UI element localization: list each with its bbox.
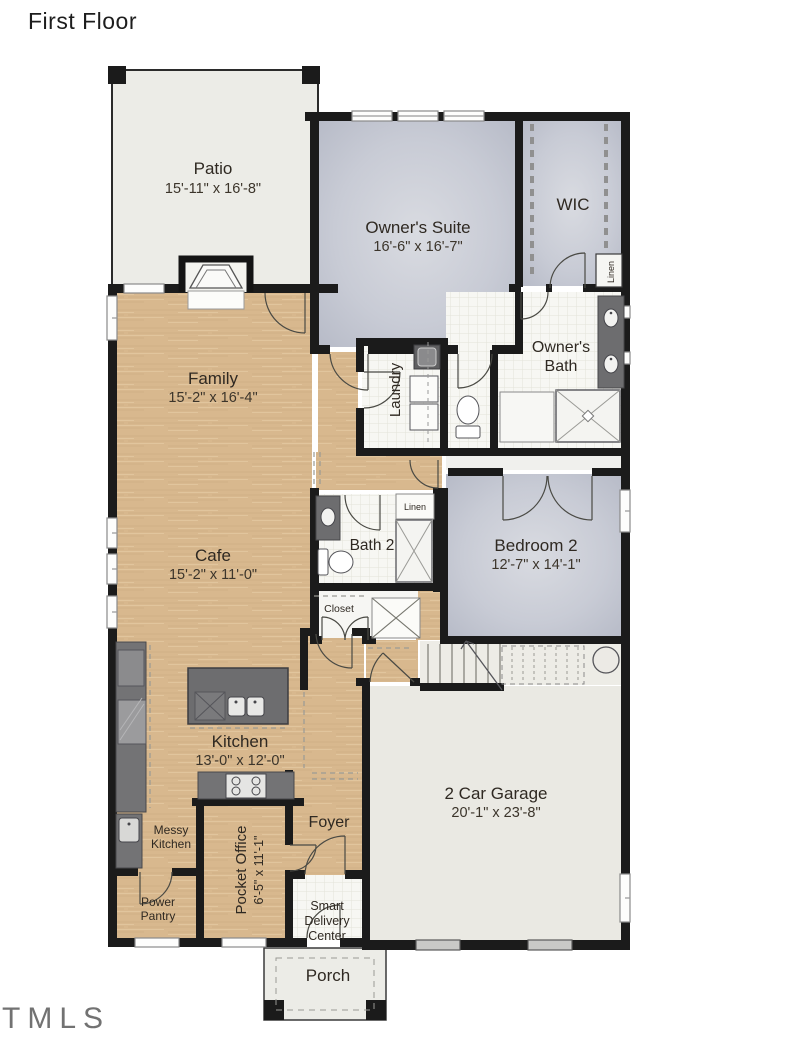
fireplace-icon <box>182 259 250 309</box>
wall-oven-icon <box>118 650 144 686</box>
pocket-office-label: Pocket Office <box>233 826 250 915</box>
wic-label: WIC <box>556 195 589 214</box>
bifold-doors <box>372 598 420 638</box>
window <box>222 938 266 947</box>
power-pantry-label-2: Pantry <box>141 909 176 923</box>
kitchen-dims: 13'-0" x 12'-0" <box>195 753 284 769</box>
linen-wic-label: Linen <box>606 261 616 283</box>
sink-icon <box>247 697 264 716</box>
power-pantry-label-1: Power <box>141 895 175 909</box>
kitchen-label: Kitchen <box>212 732 269 751</box>
garage-door <box>528 940 572 950</box>
cafe-label: Cafe <box>195 546 231 565</box>
toilet-icon <box>318 549 328 575</box>
window <box>135 938 179 947</box>
linen-bath2-label: Linen <box>404 502 426 512</box>
stove-icon <box>226 774 266 798</box>
sink-icon <box>228 697 245 716</box>
pocket-office-dims: 6'-5" x 11'-1" <box>252 835 266 904</box>
closet-label: Closet <box>324 603 354 615</box>
bedroom2-dims: 12'-7" x 14'-1" <box>491 557 580 573</box>
family-dims: 15'-2" x 16'-4" <box>168 390 257 406</box>
porch-label: Porch <box>306 966 350 985</box>
tmls-watermark: TMLS <box>2 1002 110 1035</box>
water-heater-icon <box>593 647 619 673</box>
laundry-appliances <box>410 342 440 446</box>
kitchen-island <box>188 668 288 724</box>
owners-suite-label: Owner's Suite <box>365 218 470 237</box>
shower-icon <box>500 390 620 442</box>
family-label: Family <box>188 369 239 388</box>
owners-bath-vanity <box>598 296 624 388</box>
bedroom2-floor <box>446 474 623 638</box>
floor-plan-page: First Floor <box>0 0 800 1064</box>
bath2-label: Bath 2 <box>350 537 395 554</box>
window <box>124 284 164 293</box>
toilet-icon <box>456 396 480 438</box>
foyer-label: Foyer <box>309 814 351 831</box>
messy-kitchen-label-1: Messy <box>154 823 189 837</box>
patio-dims: 15'-11" x 16'-8" <box>165 181 261 197</box>
bedroom2-vestibule-floor <box>446 454 623 470</box>
patio-post <box>108 66 126 84</box>
hall-floor <box>318 352 358 452</box>
page-title: First Floor <box>28 8 137 35</box>
bedroom2-label: Bedroom 2 <box>494 536 577 555</box>
cafe-dims: 15'-2" x 11'-0" <box>169 567 257 583</box>
owners-bath-label-1: Owner's <box>532 339 590 356</box>
owners-suite-dims: 16'-6" x 16'-7" <box>373 239 462 255</box>
messy-kitchen-label-2: Kitchen <box>151 837 191 851</box>
garage-door <box>416 940 460 950</box>
smart-delivery-label-2: Delivery <box>304 914 350 928</box>
floor-plan-drawing: Patio 15'-11" x 16'-8" Owner's Suite 16'… <box>0 0 800 1064</box>
garage-dims: 20'-1" x 23'-8" <box>451 805 540 821</box>
washer-icon <box>410 376 438 402</box>
smart-delivery-label-1: Smart <box>310 899 344 913</box>
patio-floor <box>112 70 318 287</box>
smart-delivery-label-3: Center <box>308 929 346 943</box>
garage-label: 2 Car Garage <box>445 784 548 803</box>
patio-post <box>302 66 320 84</box>
dryer-icon <box>410 404 438 430</box>
sink-icon <box>119 818 139 842</box>
laundry-label: Laundry <box>387 362 404 417</box>
patio-label: Patio <box>194 159 233 178</box>
stair-floor <box>420 641 623 685</box>
owners-bath-label-2: Bath <box>545 358 578 375</box>
